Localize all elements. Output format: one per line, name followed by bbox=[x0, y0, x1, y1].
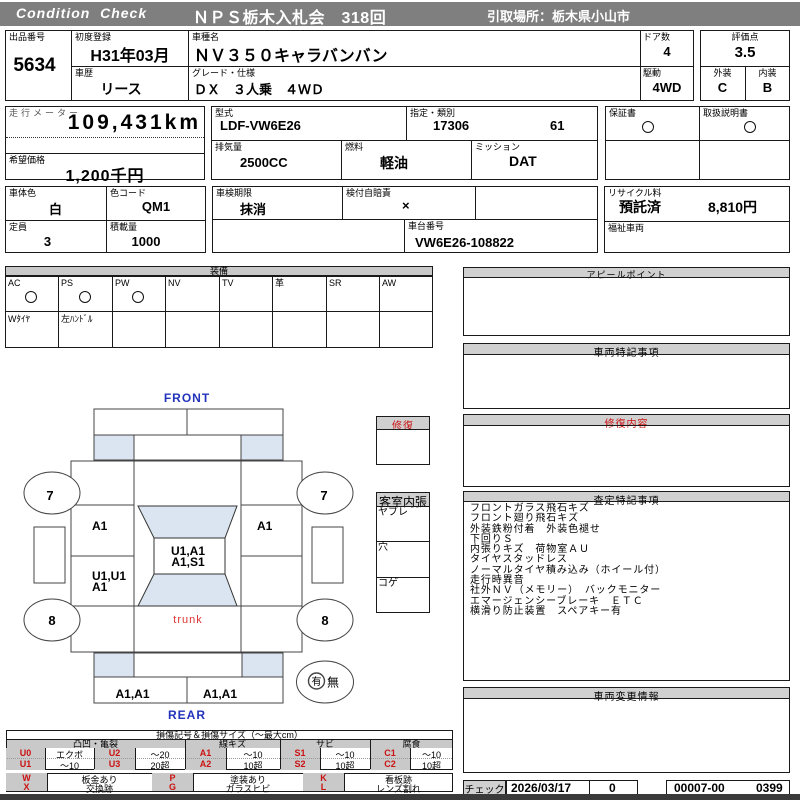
svg-text:8: 8 bbox=[321, 613, 328, 628]
svg-text:有: 有 bbox=[312, 675, 322, 688]
svg-text:FRONT: FRONT bbox=[164, 391, 210, 405]
svg-text:A1,S1: A1,S1 bbox=[171, 555, 205, 569]
svg-text:A1,A1: A1,A1 bbox=[115, 687, 149, 701]
svg-text:A1: A1 bbox=[257, 519, 273, 533]
svg-text:無: 無 bbox=[327, 675, 339, 690]
svg-text:A1: A1 bbox=[92, 580, 108, 594]
svg-text:A1: A1 bbox=[92, 519, 108, 533]
svg-text:7: 7 bbox=[320, 488, 327, 503]
svg-text:trunk: trunk bbox=[173, 614, 202, 626]
svg-text:7: 7 bbox=[46, 488, 53, 503]
svg-text:A1,A1: A1,A1 bbox=[203, 687, 237, 701]
svg-text:REAR: REAR bbox=[168, 708, 206, 722]
svg-text:8: 8 bbox=[48, 613, 55, 628]
